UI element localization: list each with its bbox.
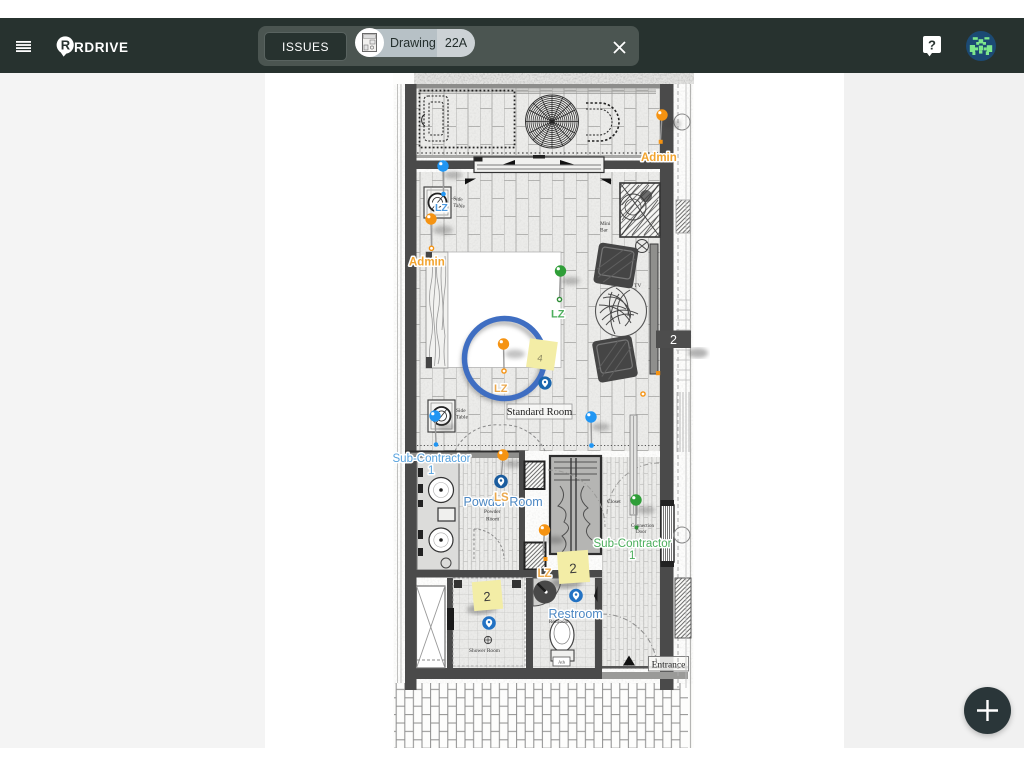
- svg-text:LZ: LZ: [494, 383, 508, 395]
- svg-text:2: 2: [483, 589, 492, 605]
- svg-text:LS: LS: [494, 492, 509, 504]
- svg-text:Admin: Admin: [409, 257, 445, 269]
- svg-text:R: R: [61, 38, 71, 53]
- svg-text:Restroom: Restroom: [549, 607, 603, 621]
- svg-text:LZ: LZ: [435, 202, 448, 214]
- svg-text:1: 1: [428, 465, 434, 477]
- svg-text:?: ?: [928, 38, 936, 53]
- svg-text:LZ: LZ: [538, 568, 552, 580]
- svg-text:LZ: LZ: [551, 309, 565, 321]
- svg-text:2: 2: [670, 333, 677, 347]
- svg-text:Sub-Contractor: Sub-Contractor: [594, 538, 672, 550]
- svg-text:2: 2: [569, 561, 578, 576]
- svg-text:Admin: Admin: [641, 152, 677, 164]
- svg-text:1: 1: [629, 550, 635, 562]
- svg-text:Sub-Contractor: Sub-Contractor: [393, 453, 471, 465]
